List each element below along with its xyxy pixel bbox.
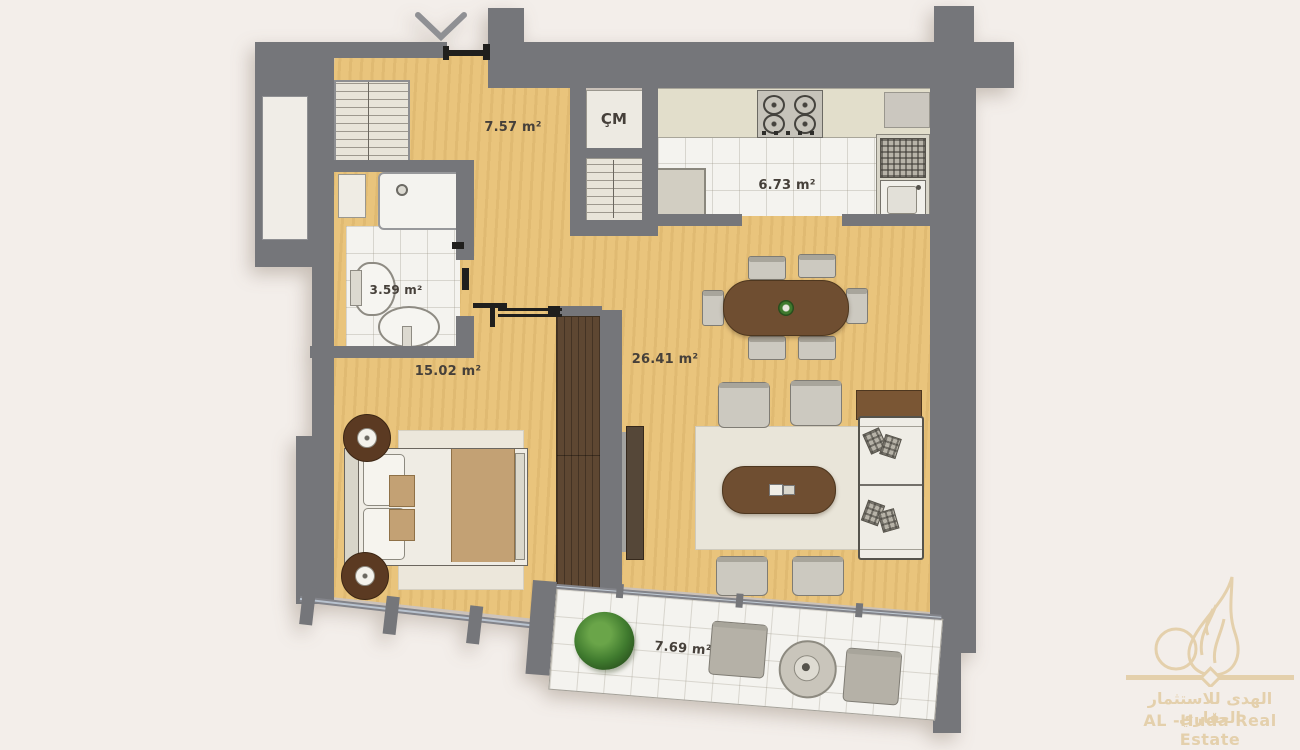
bathroom-door-leaf	[462, 268, 469, 290]
bed-cushion	[389, 475, 415, 507]
dining-chair	[748, 256, 786, 280]
passage-door-jamb	[548, 306, 560, 315]
hall-wardrobe	[334, 80, 410, 166]
hall-closet	[586, 158, 644, 222]
bathroom-area-label: 3.59 m²	[352, 284, 440, 296]
pouf	[792, 556, 844, 596]
wall	[334, 160, 474, 172]
hall-wardrobe-rail	[368, 82, 369, 160]
wall	[570, 58, 586, 236]
wall	[842, 214, 930, 226]
wall	[600, 310, 622, 596]
wall	[312, 58, 334, 436]
entry-door-jamb	[483, 44, 490, 60]
nightstand	[341, 552, 389, 600]
window-post	[735, 593, 743, 608]
wall	[296, 436, 334, 604]
wall	[656, 214, 742, 226]
wall	[560, 306, 602, 316]
entry-door-jamb	[443, 46, 449, 60]
bed-blanket	[451, 449, 515, 562]
watermark-english: AL -Huda Real Estate	[1115, 711, 1300, 749]
dining-chair	[846, 288, 868, 324]
bathroom-niche	[338, 174, 366, 218]
bedroom-wardrobe	[556, 316, 602, 594]
window-post	[616, 584, 624, 599]
hall-door-leaf	[490, 303, 495, 327]
balcony-chair	[708, 621, 768, 679]
pouf	[716, 556, 768, 596]
bathroom-door-hinge	[452, 242, 464, 249]
bed-footboard	[515, 453, 525, 560]
entrance-arrow-icon	[415, 12, 467, 42]
kitchen-shaft	[884, 92, 930, 128]
hall-closet-rail	[613, 160, 614, 218]
wall-niche	[262, 96, 308, 240]
window-mullion	[466, 605, 483, 644]
balcony-chair	[842, 647, 902, 705]
hall-area-label: 7.57 m²	[468, 121, 558, 134]
wall	[312, 42, 447, 58]
living-area-label: 26.41 m²	[619, 353, 711, 366]
fridge	[654, 168, 706, 220]
nightstand	[343, 414, 391, 462]
bedroom-area-label: 15.02 m²	[400, 365, 496, 378]
dish-rack	[880, 138, 926, 178]
watermark-logo: الهدى للاستثمار العقاري AL -Huda Real Es…	[1120, 575, 1300, 750]
coffee-table	[722, 466, 836, 514]
window-mullion	[383, 596, 400, 635]
window-mullion	[299, 586, 316, 625]
dining-chair	[798, 254, 836, 278]
stove	[757, 90, 823, 138]
kitchen-sink	[880, 180, 926, 218]
bed-cushion	[389, 509, 415, 541]
window-post	[855, 603, 863, 618]
dining-chair	[748, 336, 786, 360]
armchair	[790, 380, 842, 426]
dining-table	[723, 280, 849, 336]
al-huda-logo-icon	[1120, 575, 1300, 687]
armchair	[718, 382, 770, 428]
wall	[310, 346, 474, 358]
wall	[582, 148, 644, 158]
wall-column	[934, 6, 974, 46]
laundry-closet-label: ÇM	[586, 112, 642, 127]
tv-screen	[622, 432, 626, 552]
dining-chair	[798, 336, 836, 360]
bed	[358, 448, 528, 566]
wall	[570, 220, 658, 236]
dining-chair	[702, 290, 724, 326]
floor-plan: 7.57 m² 3.59 m² ÇM 6.73 m² 26.41 m²	[0, 0, 1300, 750]
shower-drain	[396, 184, 408, 196]
kitchen-area-label: 6.73 m²	[742, 179, 832, 192]
wall	[930, 88, 976, 653]
tv-unit	[626, 426, 644, 560]
wall	[488, 42, 1014, 88]
